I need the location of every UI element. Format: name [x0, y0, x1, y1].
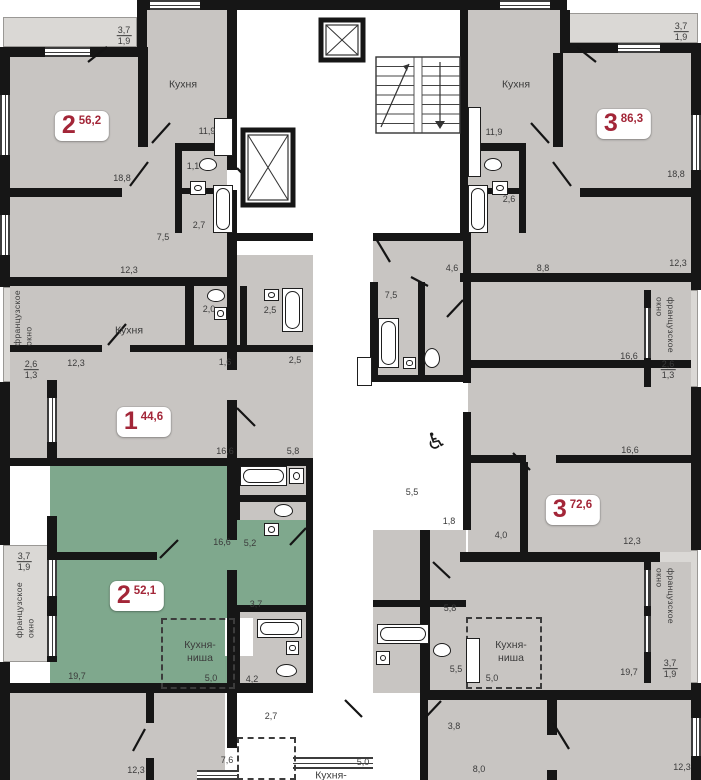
bathtub	[377, 624, 429, 644]
wall	[580, 188, 701, 197]
sink-icon	[214, 307, 227, 320]
window-size-label: 3,71,9	[117, 25, 132, 47]
wall	[460, 552, 660, 562]
toilet	[274, 504, 293, 517]
dimension-label: 12,3	[127, 765, 145, 775]
wall	[0, 382, 10, 545]
apartment-badge: 386,3	[597, 109, 651, 139]
apartment-rooms-count: 3	[553, 497, 567, 522]
toilet	[433, 643, 451, 657]
apartment-floor	[428, 700, 691, 780]
dimension-label: 7,5	[157, 232, 170, 242]
wall	[420, 690, 701, 700]
dimension-label: 5,8	[287, 446, 300, 456]
dimension-label: 5,2	[244, 538, 257, 548]
wall	[547, 690, 557, 735]
sink-icon	[376, 651, 390, 665]
wall	[460, 10, 468, 233]
wall	[691, 387, 701, 550]
window	[644, 616, 651, 652]
apartment-floor	[237, 255, 313, 286]
french-window-label: французское окно	[12, 290, 35, 346]
apartment-rooms-count: 1	[124, 409, 138, 434]
dimension-label: 19,7	[68, 671, 86, 681]
apartment-rooms-count: 2	[117, 583, 131, 608]
apartment-area: 52,1	[134, 585, 156, 597]
dimension-label: 8,8	[537, 263, 550, 273]
dimension-label: 5,0	[205, 673, 218, 683]
dimension-label: 12,3	[623, 536, 641, 546]
wall	[547, 770, 557, 780]
wall	[237, 233, 313, 241]
apartment-floor	[10, 693, 227, 780]
window	[618, 43, 660, 53]
corridor-floor	[345, 382, 463, 530]
wall	[463, 412, 471, 530]
apartment-area: 44,6	[141, 411, 163, 423]
bathtub	[213, 185, 233, 233]
dimension-label: 5,0	[357, 757, 370, 767]
dimension-label: 3,7	[250, 599, 263, 609]
window	[644, 308, 651, 358]
wheelchair-icon: ♿	[424, 428, 449, 455]
apartment-rooms-count: 3	[604, 111, 618, 136]
dimension-label: 1,1	[187, 161, 200, 171]
window-height: 1,3	[661, 371, 676, 381]
dimension-label: 11,9	[486, 127, 503, 137]
dimension-label: 12,3	[67, 358, 85, 368]
french-window-label: французское окно	[653, 568, 676, 624]
window-width: 3,7	[117, 25, 132, 36]
wall	[233, 605, 310, 612]
bathtub	[282, 288, 303, 332]
apartment-floor	[137, 10, 233, 50]
floor-plan: 11,918,81,12,77,512,311,918,82,612,38,84…	[0, 0, 701, 780]
window	[691, 115, 701, 170]
counter	[468, 107, 481, 177]
wall	[0, 277, 237, 286]
room-label: Кухня	[502, 78, 530, 91]
window	[47, 398, 57, 442]
window-size-label: 2,61,3	[24, 359, 39, 381]
bathtub	[257, 619, 302, 638]
apartment-area: 56,2	[79, 115, 101, 127]
sink-icon	[492, 181, 508, 195]
window-size-label: 3,71,9	[674, 21, 689, 43]
dimension-label: 19,7	[620, 667, 638, 677]
window	[197, 770, 239, 780]
dimension-label: 4,0	[495, 530, 508, 540]
wall	[0, 662, 10, 780]
corridor-floor	[233, 10, 460, 233]
window-width: 3,7	[663, 658, 678, 669]
dimension-label: 7,6	[221, 755, 234, 765]
french-window-label: французское окно	[653, 297, 676, 353]
bathtub	[468, 185, 488, 233]
dimension-label: 4,6	[446, 263, 459, 273]
dimension-label: 16,6	[213, 537, 231, 547]
apartment-badge: 144,6	[117, 407, 171, 437]
wall	[175, 151, 182, 233]
window-size-label: 2,61,3	[661, 359, 676, 381]
wall	[130, 345, 313, 352]
wall	[520, 462, 528, 552]
wall	[466, 455, 526, 463]
room-label: Кухня- ниша	[184, 639, 216, 665]
dimension-label: 8,0	[473, 764, 486, 774]
window-width: 3,7	[17, 551, 32, 562]
window	[644, 570, 651, 606]
wall	[519, 151, 526, 233]
toilet	[276, 664, 297, 677]
room-label: Кухня- ниша	[495, 639, 527, 665]
dimension-label: 2,5	[264, 305, 277, 315]
room-label: Кухня	[115, 324, 143, 337]
dimension-label: 11,9	[199, 126, 216, 136]
wall	[227, 693, 237, 748]
wall	[460, 273, 701, 282]
window	[47, 560, 57, 596]
wall	[370, 375, 466, 382]
wall	[0, 683, 313, 693]
apartment-floor	[466, 10, 562, 53]
dimension-label: 3,8	[448, 721, 461, 731]
window-width: 3,7	[674, 21, 689, 32]
window	[45, 47, 90, 57]
wall	[185, 286, 194, 346]
bathtub	[240, 466, 287, 486]
counter	[357, 357, 372, 386]
sink-icon	[264, 523, 279, 536]
window	[47, 616, 57, 656]
dimension-label: 1,8	[443, 516, 456, 526]
dimension-label: 18,8	[667, 169, 685, 179]
counter	[466, 638, 480, 683]
wall	[373, 233, 463, 241]
sink-icon	[190, 181, 206, 195]
french-window-label: французское окно	[14, 582, 37, 638]
window	[0, 215, 10, 255]
dimension-label: 16,6	[621, 445, 639, 455]
wall	[146, 758, 154, 780]
window	[0, 95, 10, 155]
wall	[57, 552, 157, 560]
wall	[146, 693, 154, 723]
window-height: 1,3	[24, 371, 39, 381]
wall	[0, 188, 122, 197]
dimension-label: 2,5	[289, 355, 302, 365]
window-height: 1,9	[117, 37, 132, 47]
toilet	[424, 348, 440, 368]
wall	[466, 360, 691, 368]
wall	[420, 693, 428, 780]
dimension-label: 2,7	[265, 711, 278, 721]
wall	[556, 455, 691, 463]
sink-icon	[286, 641, 299, 655]
apartment-area: 86,3	[621, 113, 643, 125]
bathtub	[378, 318, 399, 368]
window-width: 2,6	[661, 359, 676, 370]
counter	[214, 118, 233, 156]
dimension-label: 2,6	[503, 194, 516, 204]
wall	[10, 345, 102, 352]
window-size-label: 3,71,9	[663, 658, 678, 680]
dimension-label: 1,6	[219, 357, 232, 367]
dimension-label: 16,6	[620, 351, 638, 361]
window-height: 1,9	[663, 670, 678, 680]
wall	[237, 495, 310, 502]
dimension-label: 12,3	[673, 762, 691, 772]
apartment-badge: 372,6	[546, 495, 600, 525]
window-height: 1,9	[17, 563, 32, 573]
window	[500, 0, 550, 10]
window-height: 1,9	[674, 33, 689, 43]
dimension-label: 12,3	[669, 258, 687, 268]
toilet	[199, 158, 217, 171]
wall	[420, 530, 430, 693]
wall	[553, 53, 563, 147]
window	[150, 0, 200, 10]
dimension-label: 18,8	[113, 173, 131, 183]
wall	[233, 460, 240, 520]
window	[691, 718, 701, 756]
room-label: Кухня-	[315, 769, 347, 780]
wall	[240, 286, 247, 345]
dimension-label: 5,5	[406, 487, 419, 497]
apartment-badge: 256,2	[55, 111, 109, 141]
sink-icon	[289, 468, 304, 484]
apartment-badge: 252,1	[110, 581, 164, 611]
dimension-label: 5,5	[450, 664, 463, 674]
sink-icon	[403, 357, 416, 369]
dimension-label: 2,7	[193, 220, 206, 230]
sink-icon	[264, 289, 279, 301]
dimension-label: 2,0	[203, 304, 216, 314]
window-size-label: 3,71,9	[17, 551, 32, 573]
room-label: Кухня	[169, 78, 197, 91]
toilet	[207, 289, 225, 302]
toilet	[484, 158, 502, 171]
dimension-label: 16,6	[216, 446, 234, 456]
kitchen-niche-outline	[237, 737, 296, 780]
dimension-label: 5,0	[486, 673, 499, 683]
dimension-label: 7,5	[385, 290, 398, 300]
dimension-label: 12,3	[120, 265, 138, 275]
dimension-label: 5,8	[444, 603, 457, 613]
apartment-area: 72,6	[570, 499, 592, 511]
wall	[138, 47, 148, 147]
window-width: 2,6	[24, 359, 39, 370]
apartment-rooms-count: 2	[62, 113, 76, 138]
dimension-label: 4,2	[246, 674, 259, 684]
